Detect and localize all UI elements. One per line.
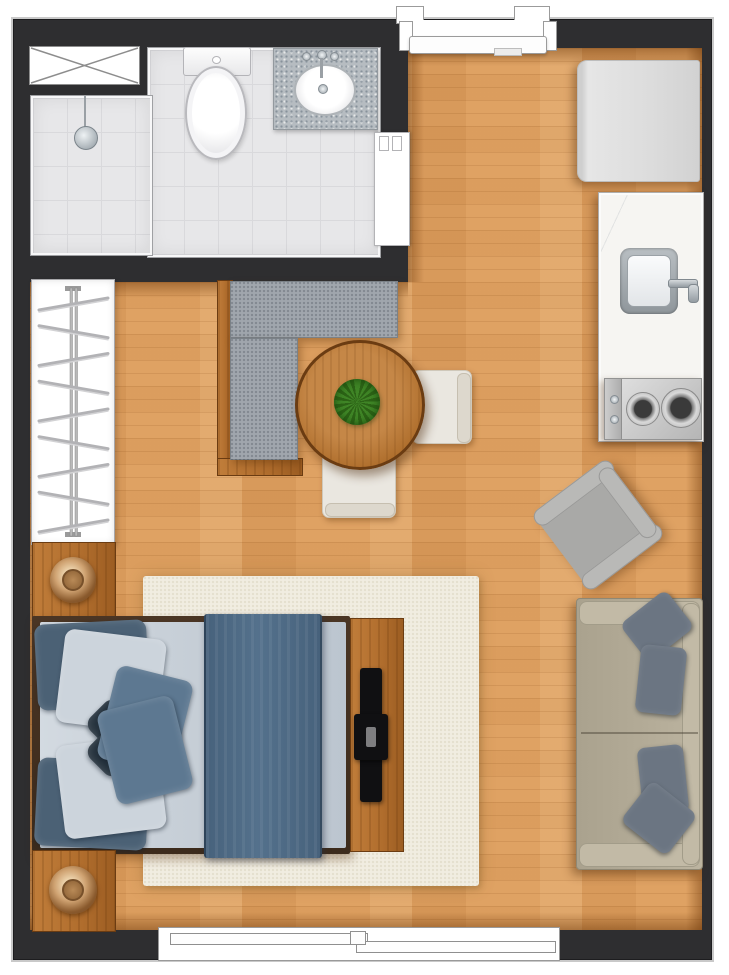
sofa-seat-seam	[581, 732, 698, 734]
kitchen-sink-basin	[627, 255, 671, 307]
toilet-flush-button	[212, 56, 221, 64]
shower-arm	[84, 96, 86, 127]
burner-small-icon	[626, 392, 660, 426]
window-latch	[350, 931, 366, 945]
entry-door-handle	[494, 48, 522, 56]
chair-backrest	[457, 373, 471, 443]
faucet-handle-right	[330, 52, 339, 61]
door-pull-left	[379, 136, 389, 151]
window-pane-right	[356, 941, 556, 953]
basin-drain	[318, 84, 328, 94]
shower-stall	[31, 96, 152, 255]
kitchen-faucet-head	[688, 284, 699, 303]
burner-large-icon	[661, 388, 701, 428]
shaft-x-icon	[30, 47, 139, 84]
tv-mount-slot	[366, 727, 376, 747]
chair-backrest	[325, 503, 395, 517]
cooktop-knob-2	[610, 415, 619, 424]
potted-plant-icon	[334, 379, 380, 425]
window-pane-left	[170, 933, 368, 945]
sofa-pillow	[635, 644, 688, 716]
cooktop	[604, 378, 702, 440]
lamp-shade-ring	[62, 569, 84, 591]
door-pull-right	[392, 136, 402, 151]
faucet-handle-left	[302, 52, 311, 61]
cooktop-knob-strip	[605, 379, 622, 439]
shower-head-icon	[74, 126, 98, 150]
bed-runner	[204, 614, 322, 858]
lamp-icon	[49, 866, 97, 914]
entry-door-leaf	[409, 36, 547, 54]
hanger-rod-icon	[32, 280, 114, 544]
bench-side-section	[230, 338, 298, 460]
cooktop-knob-1	[610, 395, 619, 404]
tv-mount	[354, 714, 388, 760]
bathroom-sliding-door	[374, 132, 410, 246]
open-wardrobe	[31, 279, 115, 545]
lamp-icon	[50, 557, 96, 603]
floor-plan	[0, 0, 729, 975]
bench-top-section	[230, 281, 398, 338]
bench-wood-end	[217, 458, 303, 476]
faucet-stem	[320, 58, 323, 78]
lamp-shade-ring	[62, 879, 84, 901]
toilet-bowl	[185, 66, 247, 160]
utility-shaft	[29, 46, 140, 85]
refrigerator	[577, 60, 700, 182]
